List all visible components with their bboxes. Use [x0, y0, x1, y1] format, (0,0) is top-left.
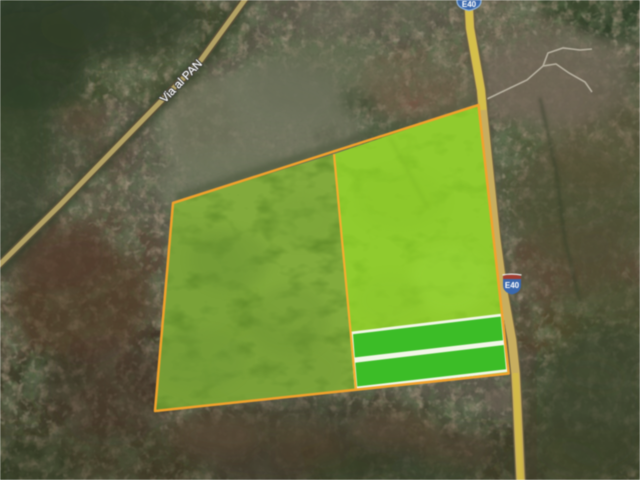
svg-text:E40: E40	[462, 0, 477, 9]
svg-text:E40: E40	[505, 281, 520, 290]
